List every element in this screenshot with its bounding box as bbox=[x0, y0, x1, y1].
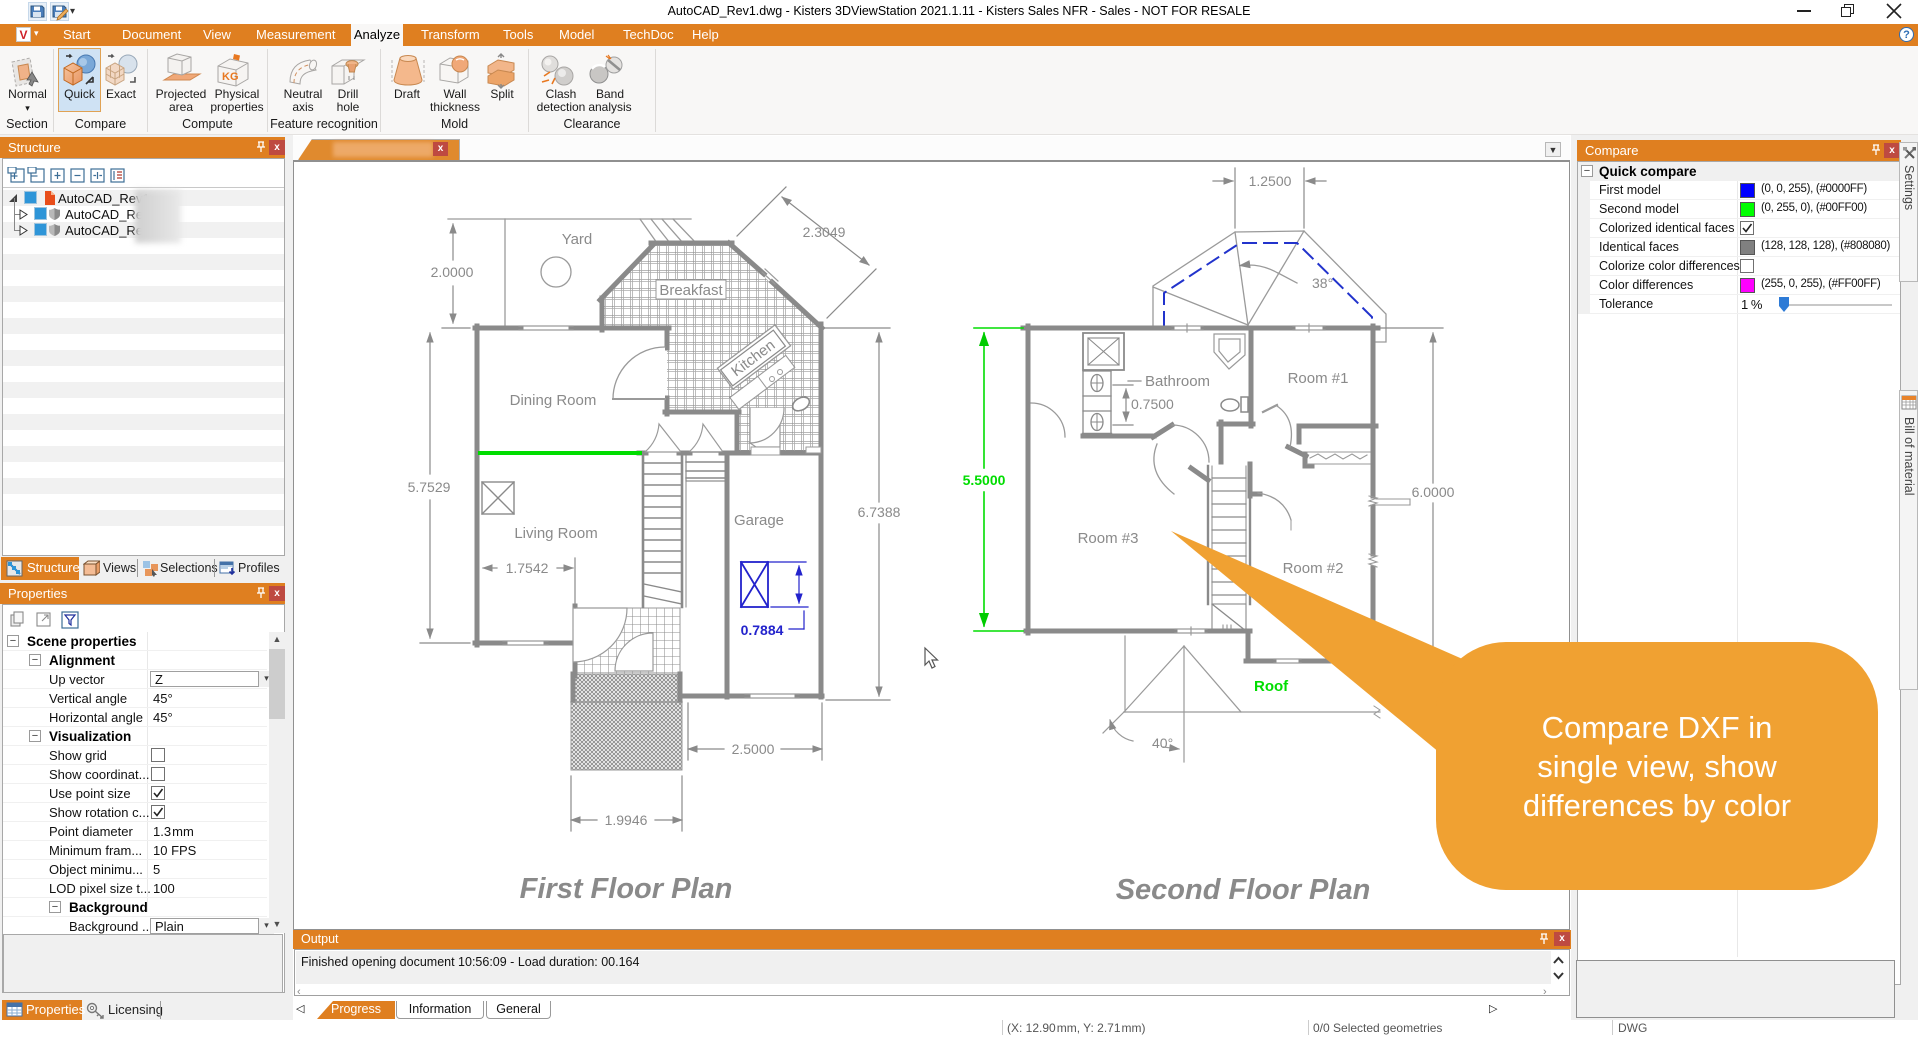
svg-text:6.0000: 6.0000 bbox=[1412, 484, 1455, 500]
svg-text:5.5000: 5.5000 bbox=[963, 472, 1006, 488]
svg-text:differences by color: differences by color bbox=[1523, 788, 1791, 823]
svg-text:1.7542: 1.7542 bbox=[506, 560, 549, 576]
svg-text:Living Room: Living Room bbox=[514, 525, 597, 542]
svg-text:First Floor Plan: First Floor Plan bbox=[520, 873, 733, 905]
svg-text:Room #1: Room #1 bbox=[1288, 370, 1349, 387]
svg-text:1.2500: 1.2500 bbox=[1249, 173, 1292, 189]
svg-text:Yard: Yard bbox=[562, 231, 593, 248]
svg-text:5.7529: 5.7529 bbox=[408, 479, 451, 495]
svg-text:Compare DXF in: Compare DXF in bbox=[1542, 710, 1773, 745]
svg-text:2.0000: 2.0000 bbox=[431, 264, 474, 280]
svg-text:Garage: Garage bbox=[734, 512, 784, 529]
svg-text:single view, show: single view, show bbox=[1537, 749, 1777, 784]
svg-text:KG: KG bbox=[222, 71, 239, 83]
svg-text:38°: 38° bbox=[1312, 275, 1333, 291]
svg-text:Dining Room: Dining Room bbox=[510, 392, 597, 409]
svg-text:2.3049: 2.3049 bbox=[803, 224, 846, 240]
svg-text:Breakfast: Breakfast bbox=[659, 282, 723, 299]
svg-text:Bathroom: Bathroom bbox=[1145, 373, 1210, 390]
svg-text:0.7884: 0.7884 bbox=[741, 622, 784, 638]
svg-text:1.9946: 1.9946 bbox=[605, 812, 648, 828]
svg-text:0.7500: 0.7500 bbox=[1131, 396, 1174, 412]
svg-text:2.5000: 2.5000 bbox=[732, 741, 775, 757]
svg-text:6.7388: 6.7388 bbox=[858, 504, 901, 520]
